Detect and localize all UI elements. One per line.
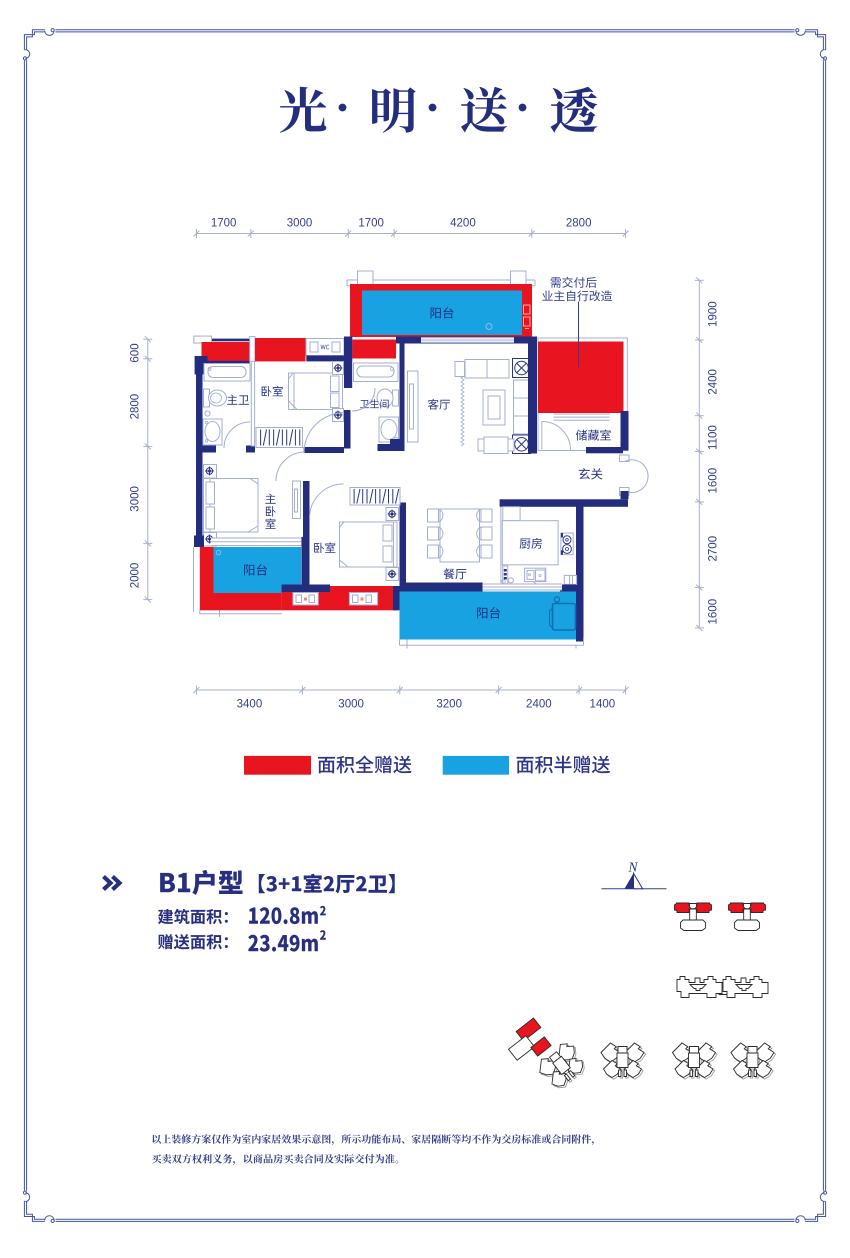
- svg-text:2800: 2800: [130, 394, 142, 420]
- svg-text:N: N: [627, 860, 638, 875]
- svg-text:2800: 2800: [566, 218, 592, 230]
- svg-text:1600: 1600: [708, 599, 720, 625]
- svg-text:2400: 2400: [526, 699, 552, 711]
- svg-text:2700: 2700: [708, 536, 720, 562]
- svg-text:2400: 2400: [708, 369, 720, 395]
- svg-text:600: 600: [130, 343, 142, 362]
- svg-text:1400: 1400: [590, 699, 616, 711]
- svg-text:2000: 2000: [130, 563, 142, 589]
- svg-text:1700: 1700: [211, 218, 237, 230]
- svg-text:4200: 4200: [450, 218, 476, 230]
- svg-text:1600: 1600: [708, 468, 720, 494]
- svg-text:3400: 3400: [237, 699, 263, 711]
- svg-text:3000: 3000: [287, 218, 313, 230]
- svg-text:3000: 3000: [338, 699, 364, 711]
- svg-text:1900: 1900: [708, 301, 720, 327]
- svg-text:1100: 1100: [708, 425, 720, 450]
- svg-text:3000: 3000: [130, 486, 142, 512]
- svg-text:3200: 3200: [436, 699, 462, 711]
- svg-text:1700: 1700: [358, 218, 384, 230]
